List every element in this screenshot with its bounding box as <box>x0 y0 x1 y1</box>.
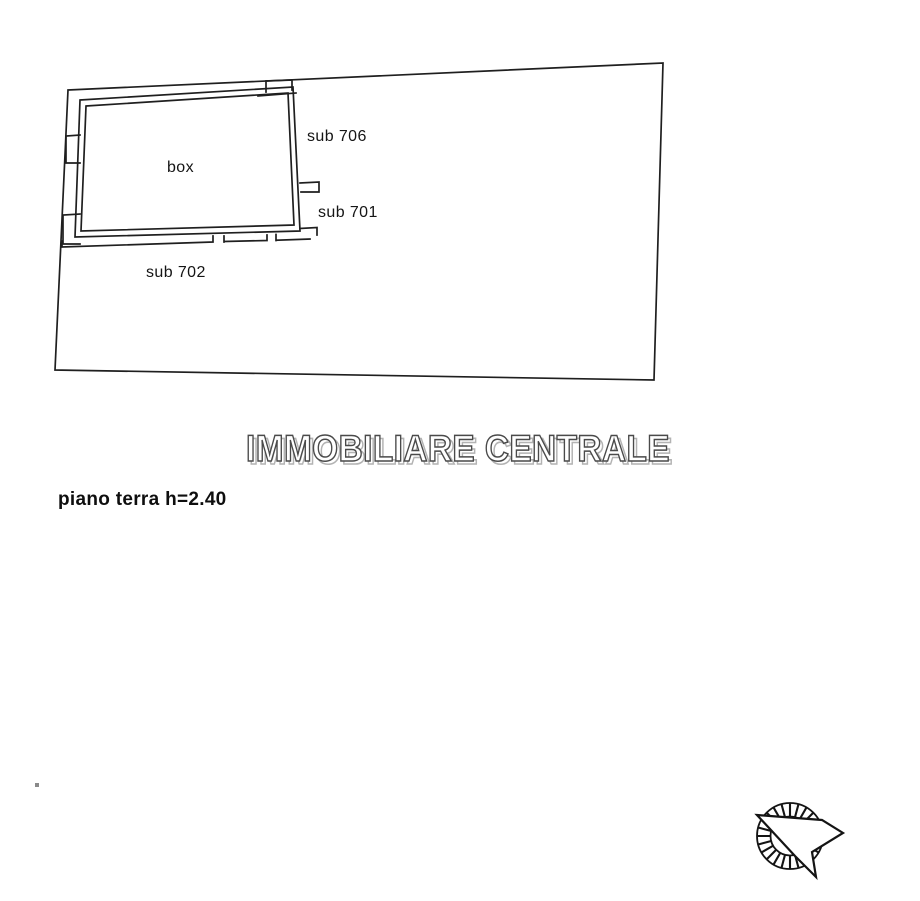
scan-speck <box>35 783 39 787</box>
watermark-group: IMMOBILIARE CENTRALE IMMOBILIARE CENTRAL… <box>246 428 673 472</box>
south-wall-segment-2 <box>224 235 267 242</box>
room-label-box: box <box>167 159 194 177</box>
divider-wall-stub <box>300 182 319 192</box>
divider-wall-foot <box>300 228 317 236</box>
top-door-jamb <box>266 80 292 92</box>
room-label-sub-702: sub 702 <box>146 264 206 282</box>
south-wall-segment-3 <box>276 235 310 241</box>
floor-caption: piano terra h=2.40 <box>58 489 227 511</box>
south-wall-segment-1 <box>62 236 213 247</box>
room-label-sub-706: sub 706 <box>307 128 367 146</box>
scanned-floor-plan-page: IMMOBILIARE CENTRALE IMMOBILIARE CENTRAL… <box>0 0 920 901</box>
floor-plan-drawing: IMMOBILIARE CENTRALE IMMOBILIARE CENTRAL… <box>0 0 920 901</box>
room-label-sub-701: sub 701 <box>318 204 378 222</box>
left-pillar-lower <box>63 214 80 244</box>
north-arrow-compass-icon <box>754 800 843 877</box>
watermark-text: IMMOBILIARE CENTRALE <box>246 428 670 469</box>
